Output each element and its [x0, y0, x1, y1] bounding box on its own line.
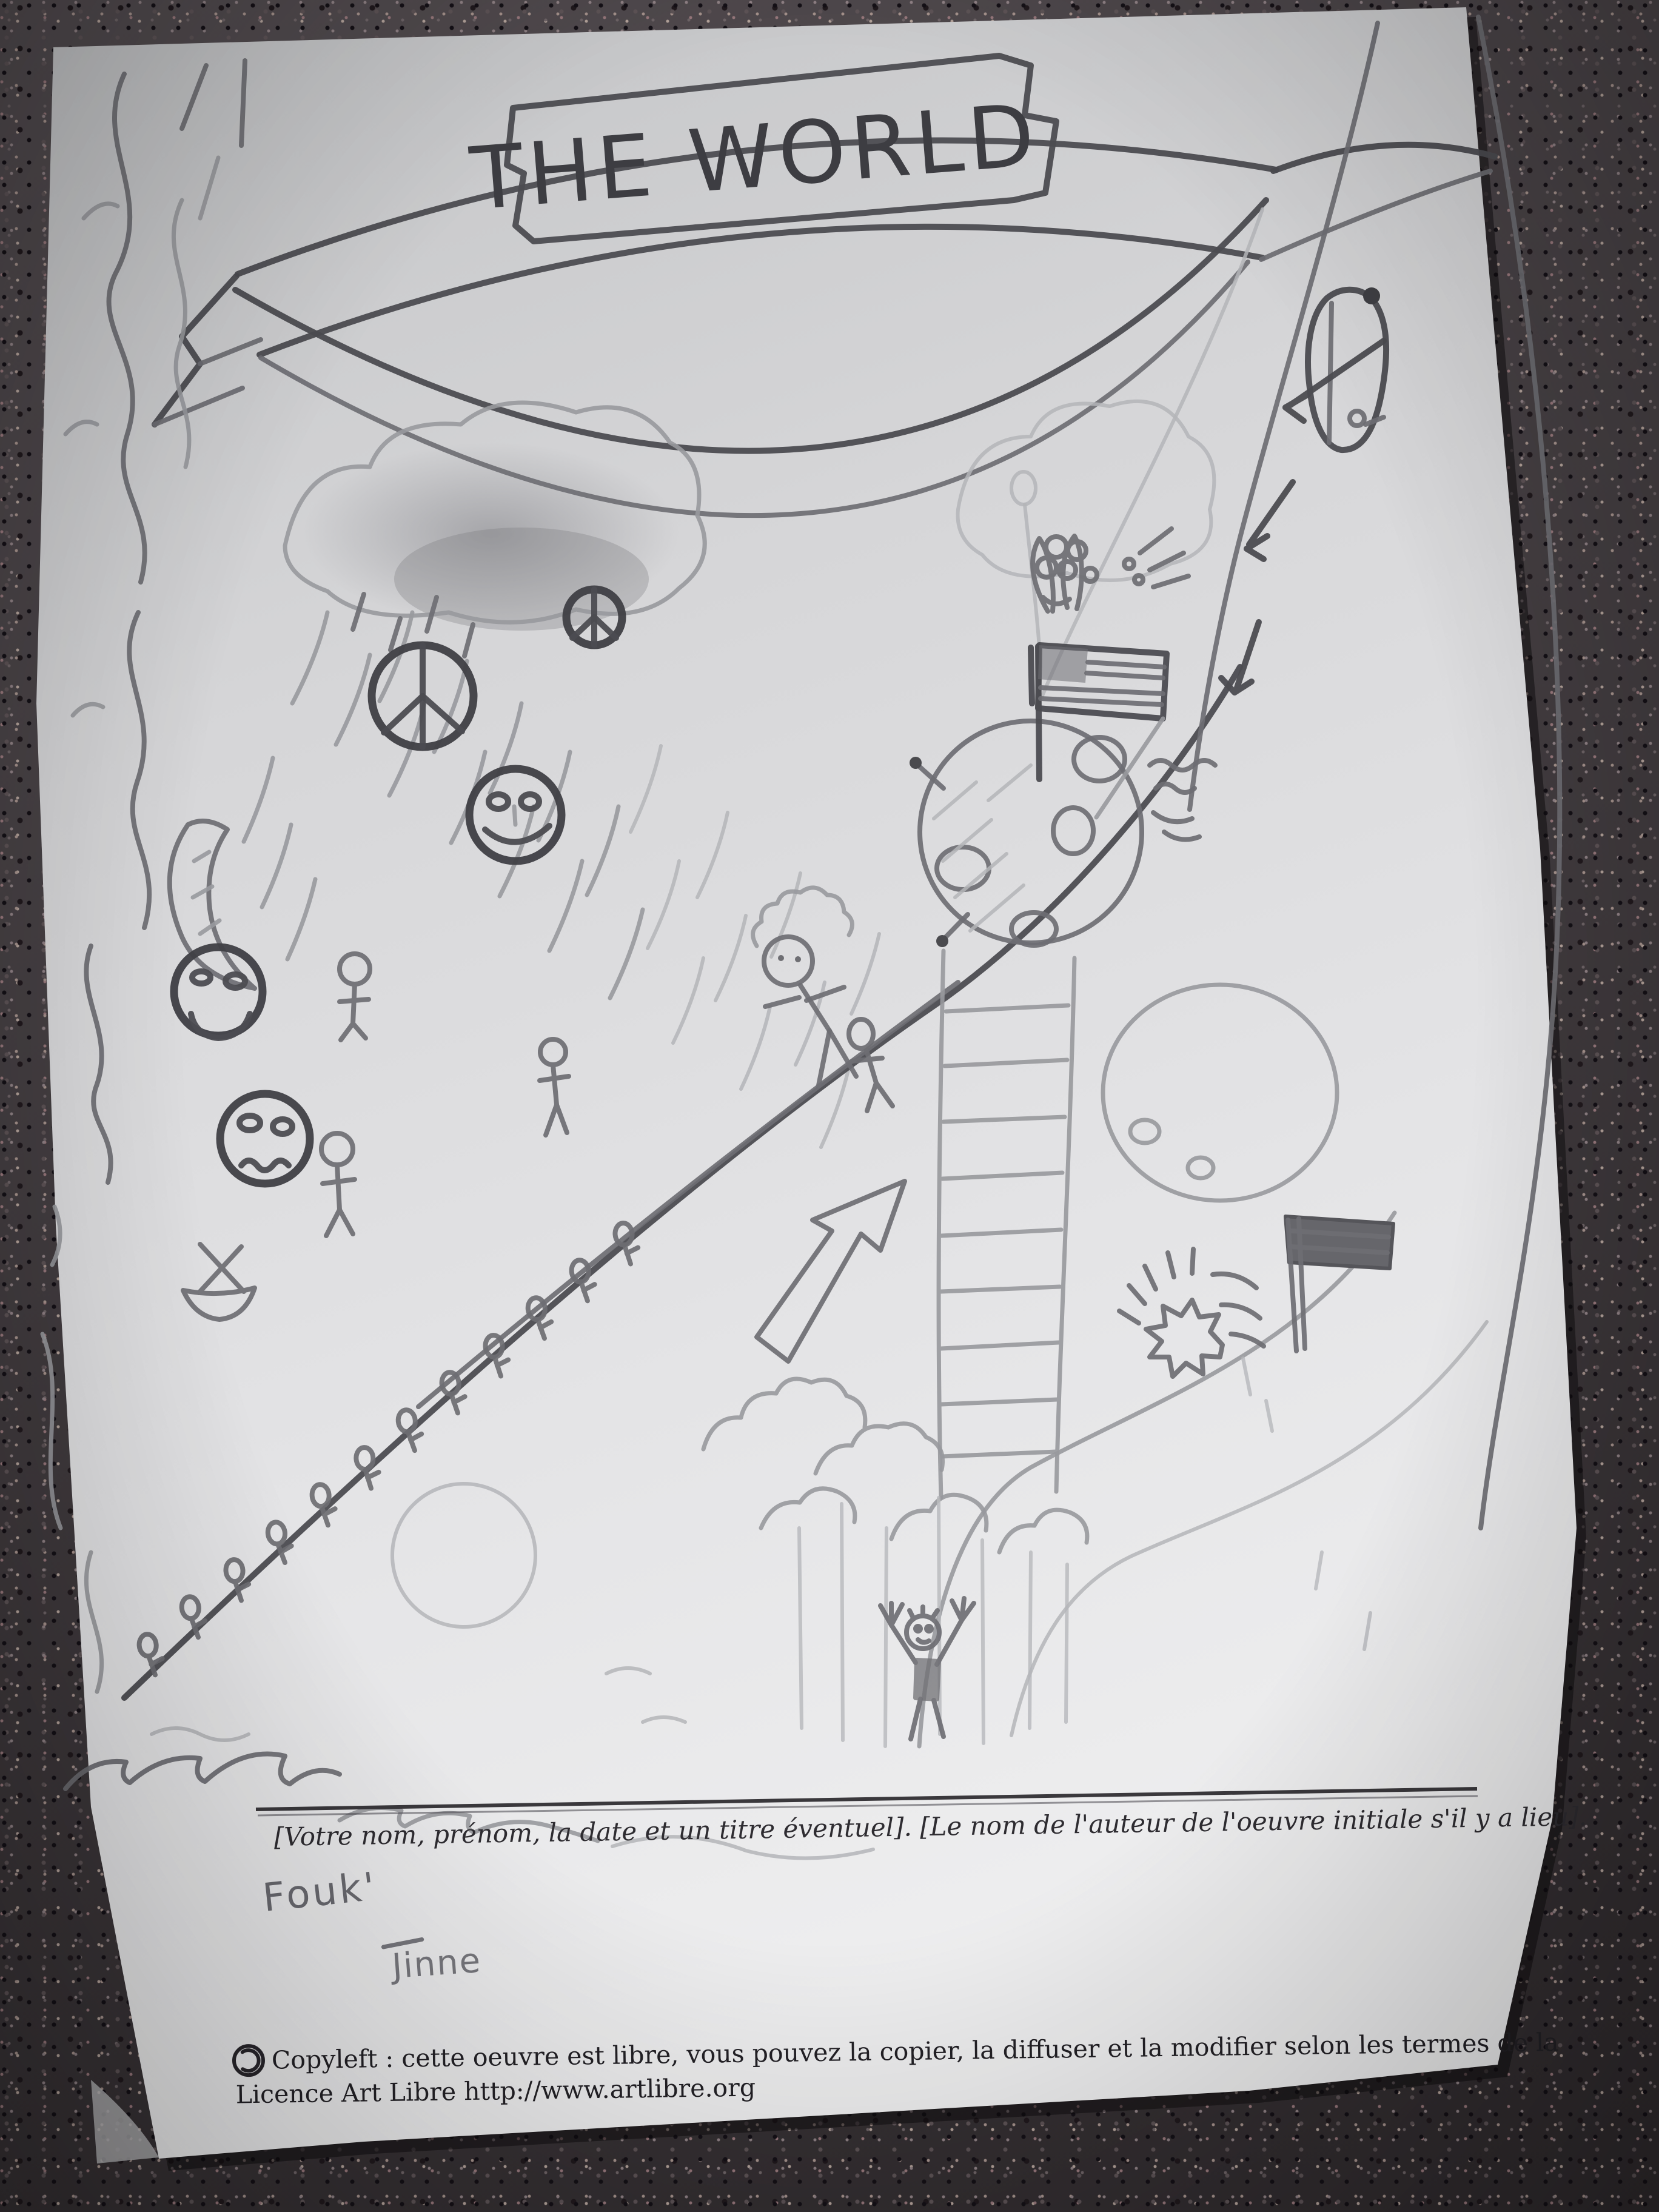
signature-name-2: Jinne [389, 1941, 483, 1986]
photo-of-drawing: THE WORLD [0, 0, 1659, 2212]
paper-drawing: THE WORLD [0, 0, 1659, 2212]
